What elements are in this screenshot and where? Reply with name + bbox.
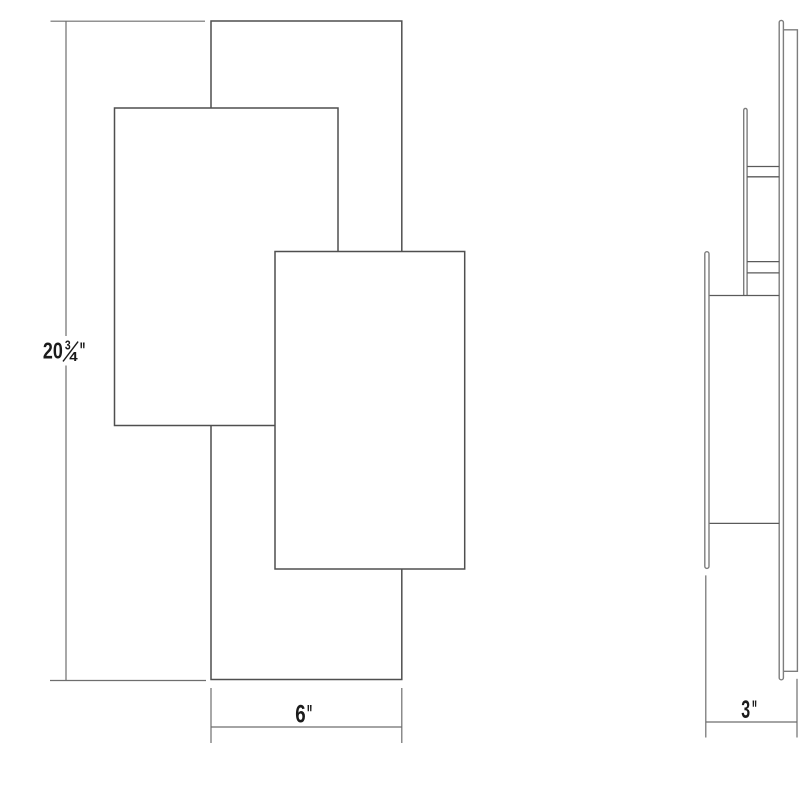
svg-text:3: 3 [741, 696, 750, 724]
svg-text:4: 4 [69, 349, 78, 364]
svg-text:20: 20 [43, 338, 63, 364]
svg-text:": " [80, 338, 86, 364]
svg-text:6: 6 [295, 700, 305, 728]
svg-text:": " [752, 696, 757, 724]
svg-text:": " [307, 700, 313, 728]
